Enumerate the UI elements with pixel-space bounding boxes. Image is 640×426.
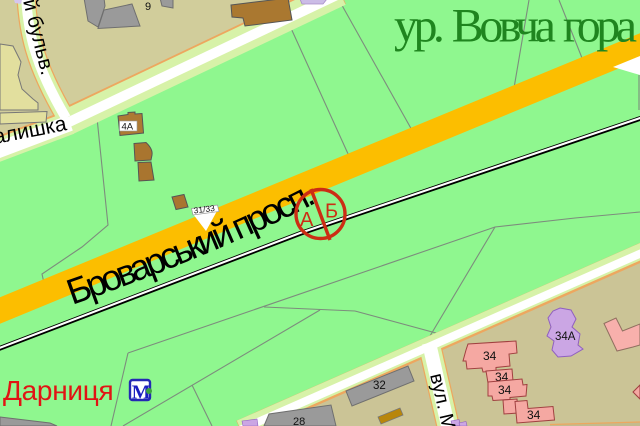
svg-text:ур. Вовча гора: ур. Вовча гора <box>394 0 637 53</box>
svg-text:34: 34 <box>527 408 541 422</box>
svg-text:А: А <box>300 209 314 231</box>
svg-text:4А: 4А <box>122 122 134 133</box>
svg-text:34А: 34А <box>555 331 576 343</box>
svg-text:34: 34 <box>483 349 497 363</box>
svg-text:9: 9 <box>145 1 151 13</box>
svg-text:Б: Б <box>325 201 338 223</box>
svg-text:Дарниця: Дарниця <box>3 375 113 406</box>
svg-text:32: 32 <box>373 380 386 392</box>
svg-text:34: 34 <box>498 383 512 397</box>
svg-text:28: 28 <box>293 416 305 426</box>
